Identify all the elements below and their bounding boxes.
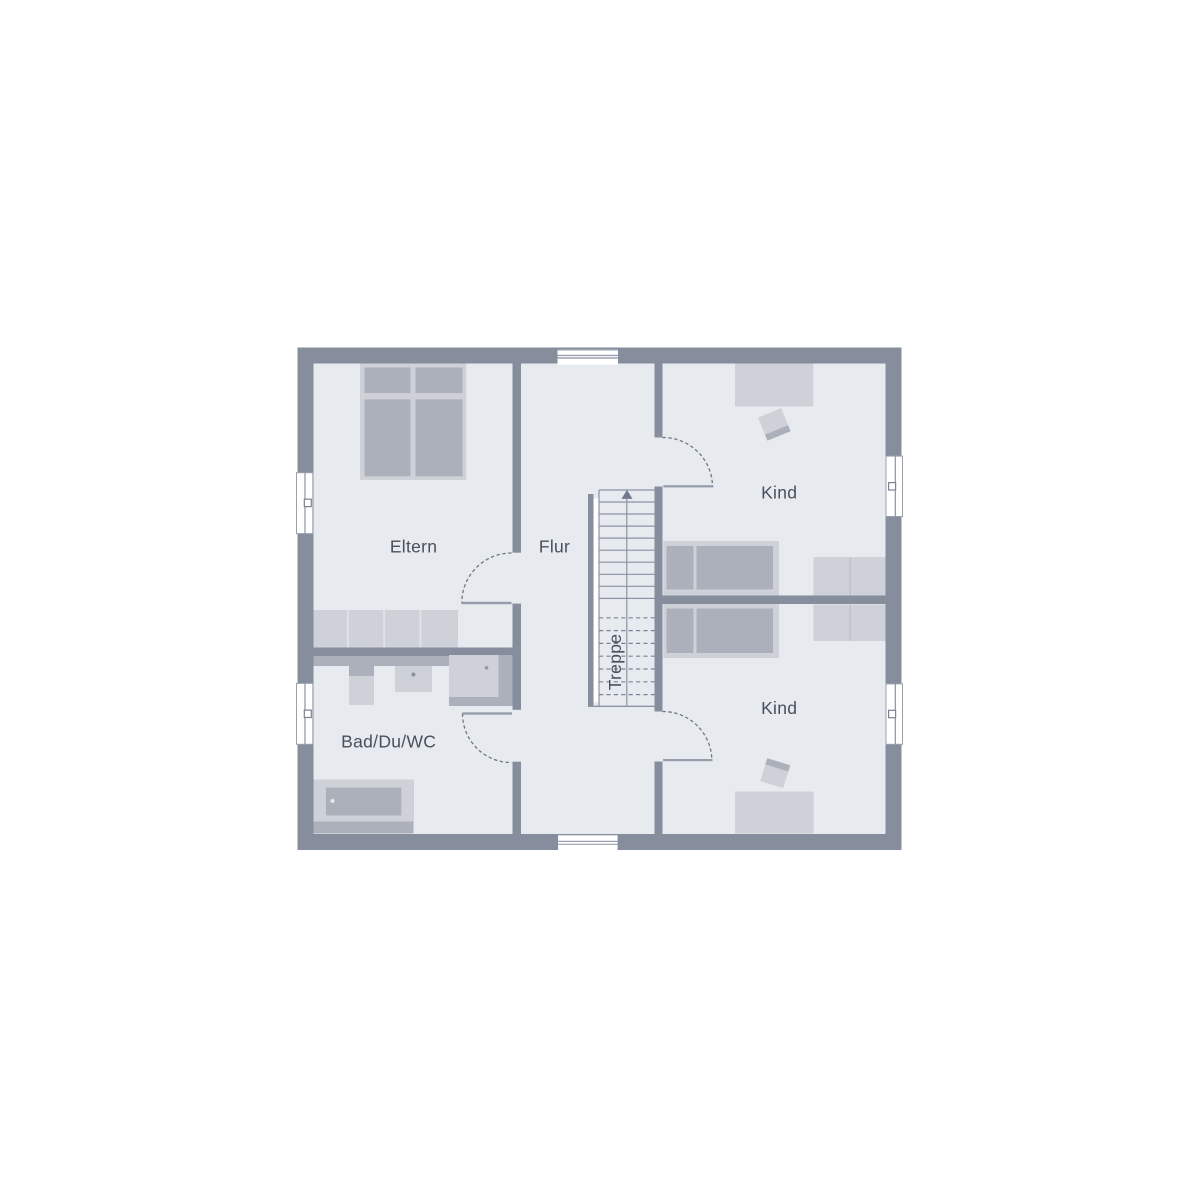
svg-text:Kind: Kind [761, 698, 797, 718]
svg-text:Kind: Kind [761, 483, 797, 503]
svg-text:Flur: Flur [539, 537, 570, 557]
svg-text:Eltern: Eltern [390, 537, 438, 557]
svg-text:Treppe: Treppe [605, 634, 625, 691]
svg-text:Bad/Du/WC: Bad/Du/WC [341, 732, 436, 752]
